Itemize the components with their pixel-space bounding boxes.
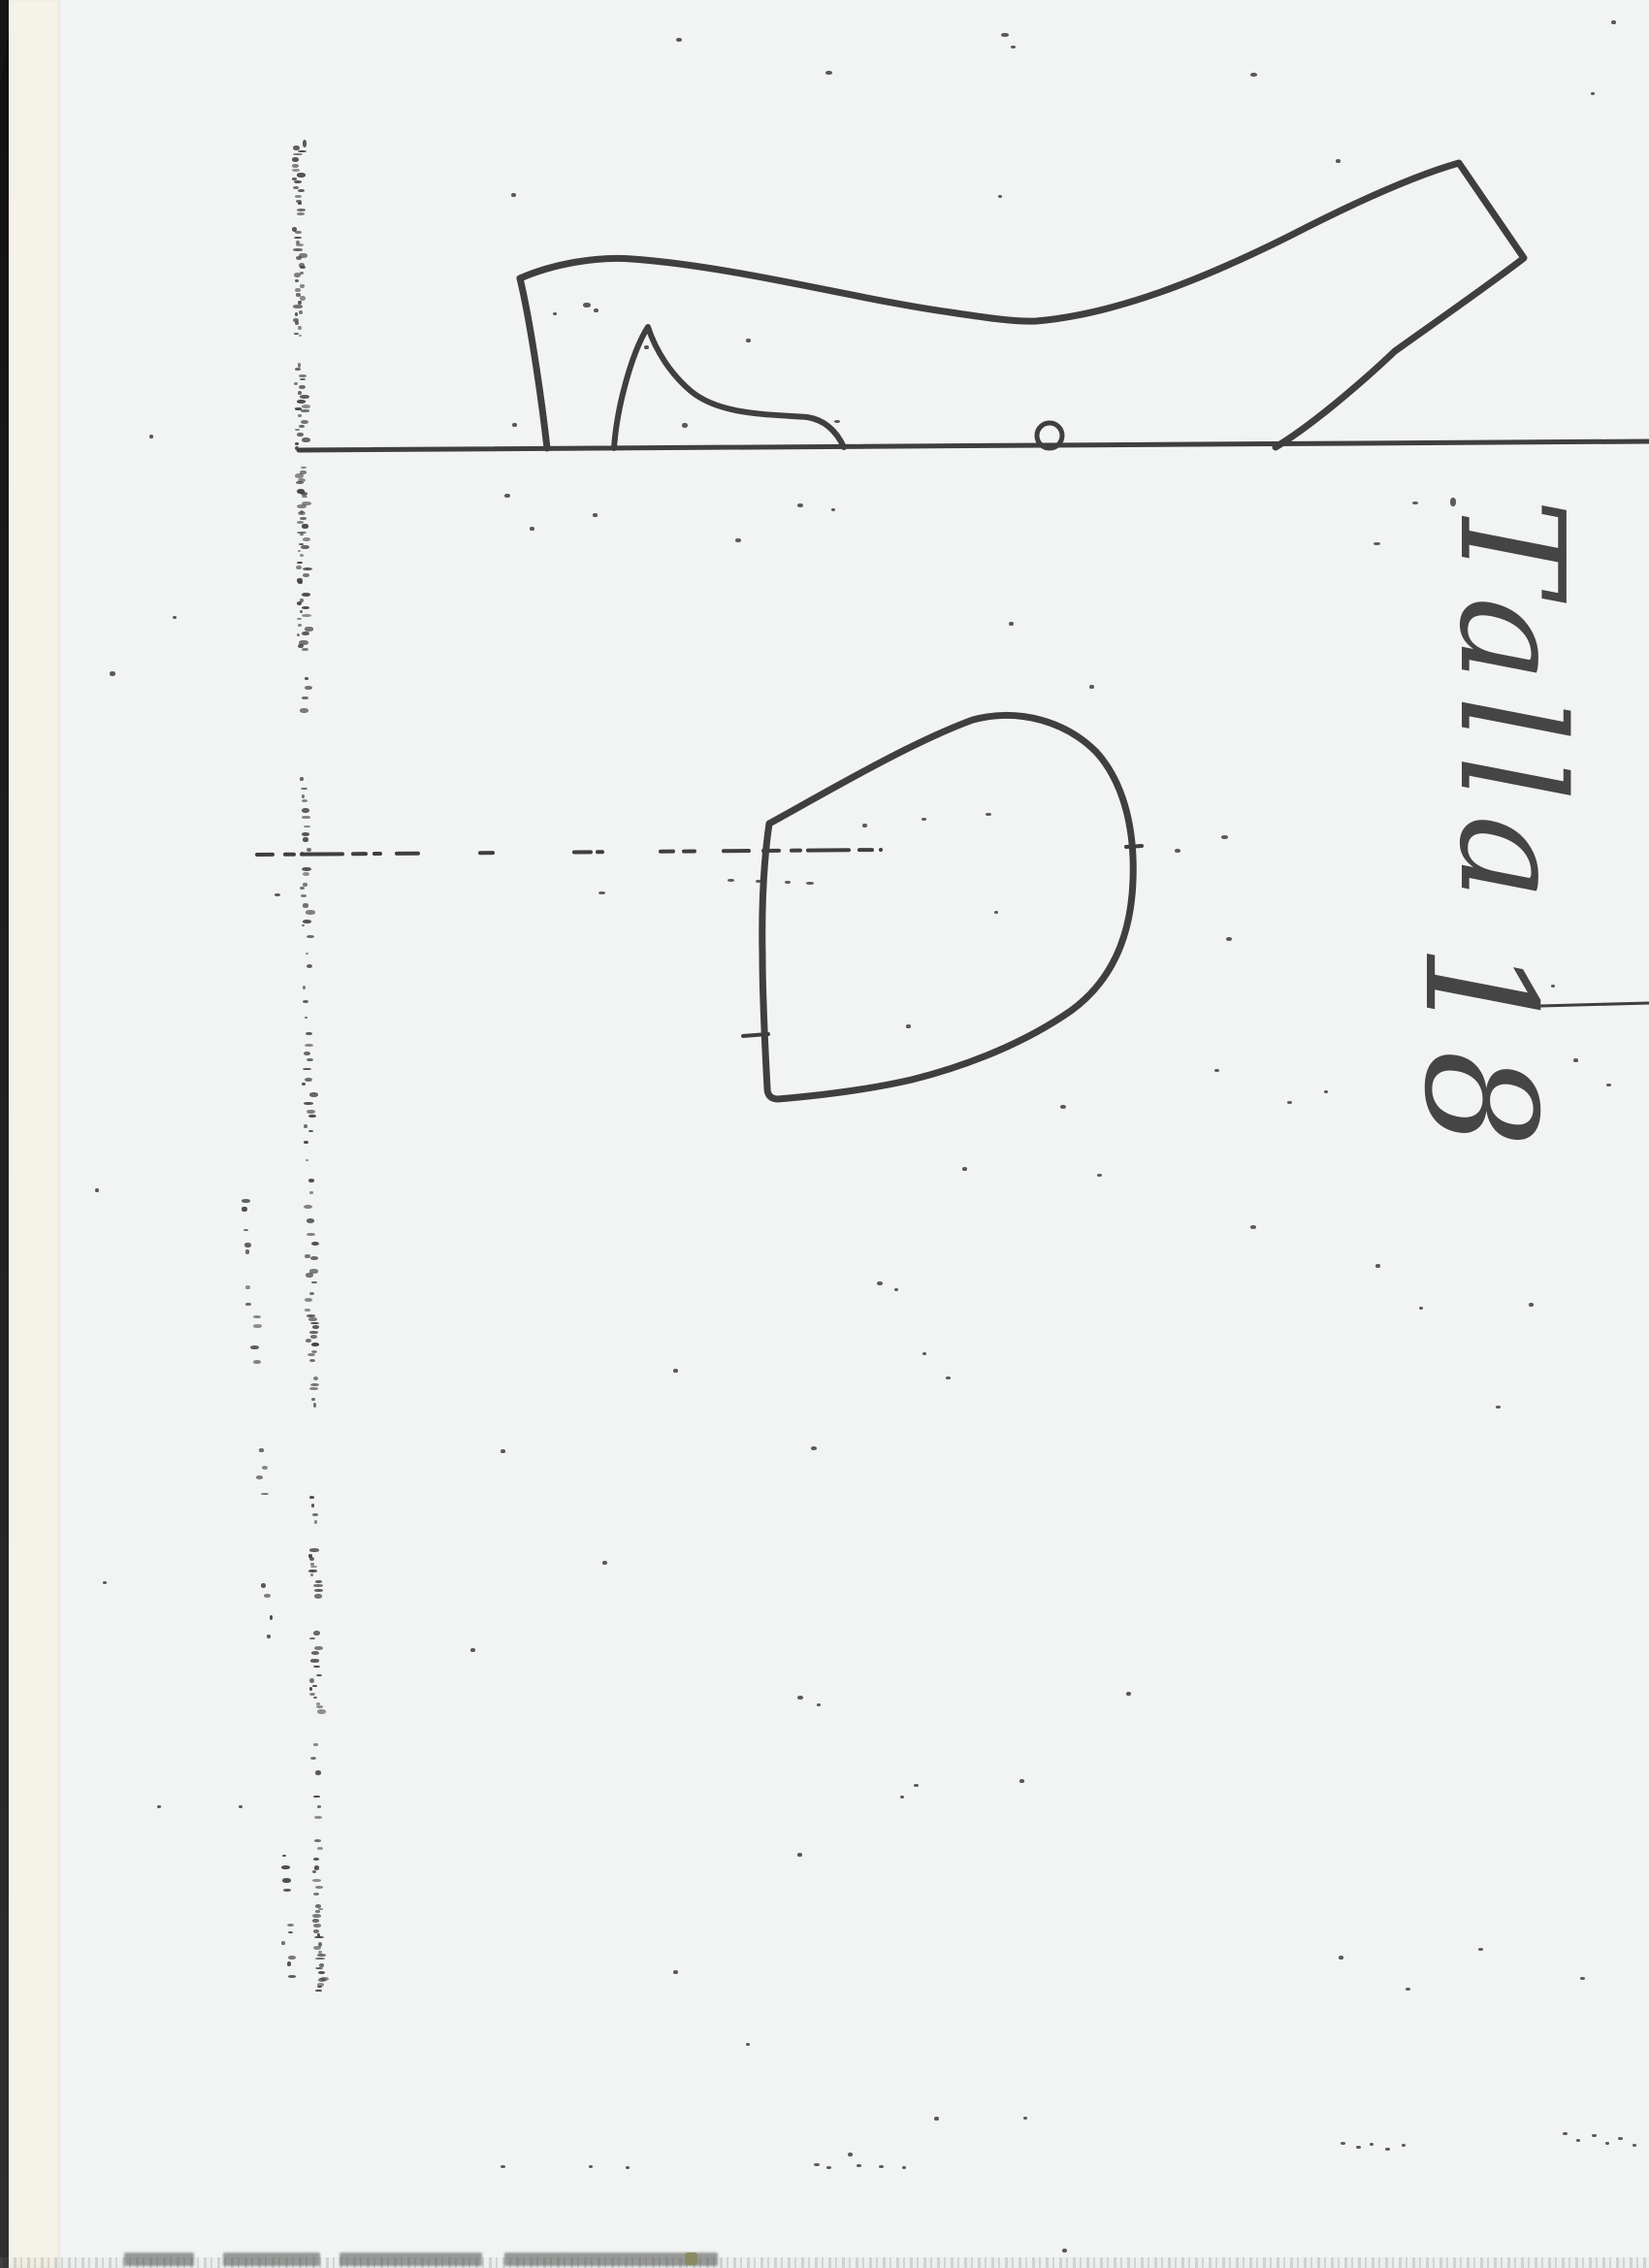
scan-speck bbox=[1011, 46, 1016, 49]
scan-speck bbox=[310, 1659, 319, 1662]
scan-speck bbox=[857, 2164, 861, 2167]
scan-speck bbox=[934, 2117, 939, 2121]
scan-speck bbox=[302, 405, 310, 408]
scan-speck bbox=[307, 1110, 315, 1114]
scan-speck bbox=[602, 1561, 607, 1565]
scan-speck bbox=[301, 894, 307, 896]
scan-speck bbox=[305, 686, 312, 690]
scan-speck bbox=[245, 1303, 251, 1306]
scan-speck bbox=[294, 273, 302, 276]
scan-speck bbox=[253, 1315, 261, 1318]
scan-speck bbox=[310, 1573, 313, 1575]
scan-speck bbox=[298, 414, 301, 417]
scan-speck bbox=[157, 1805, 161, 1808]
scan-speck bbox=[797, 503, 803, 507]
scan-speck bbox=[317, 1805, 321, 1808]
scan-speck bbox=[594, 308, 598, 312]
scan-speck bbox=[746, 2043, 750, 2046]
scan-speck bbox=[301, 788, 307, 790]
scan-speck bbox=[309, 1092, 318, 1097]
scan-speck bbox=[306, 1273, 313, 1278]
scan-speck bbox=[877, 1281, 883, 1285]
scan-speck bbox=[504, 494, 510, 498]
scan-speck bbox=[313, 1743, 317, 1746]
scan-speck bbox=[1529, 1303, 1534, 1307]
scan-speck bbox=[245, 1285, 249, 1289]
scan-speck bbox=[299, 425, 306, 427]
scan-speck bbox=[292, 164, 299, 167]
scan-speck bbox=[311, 1398, 315, 1401]
scan-speck bbox=[1336, 159, 1341, 163]
scan-speck bbox=[922, 1352, 926, 1355]
scan-speck bbox=[962, 1167, 967, 1171]
scan-speck bbox=[302, 1083, 306, 1085]
scan-speck bbox=[1551, 985, 1555, 988]
scan-speck bbox=[281, 1865, 289, 1869]
scan-speck bbox=[682, 423, 688, 428]
scan-speck bbox=[530, 527, 534, 531]
scan-speck bbox=[253, 1360, 261, 1364]
scan-speck bbox=[310, 1566, 317, 1568]
scan-speck bbox=[261, 1583, 266, 1588]
scan-speck bbox=[300, 517, 307, 519]
scan-speck bbox=[1419, 1307, 1423, 1310]
scan-speck bbox=[1126, 1692, 1131, 1696]
scan-speck bbox=[303, 537, 310, 541]
scan-speck bbox=[297, 521, 305, 524]
scan-speck bbox=[308, 1570, 317, 1572]
scan-speck bbox=[900, 1796, 904, 1798]
scan-speck bbox=[307, 1058, 313, 1061]
scan-speck bbox=[785, 881, 791, 884]
scan-speck bbox=[1406, 1988, 1410, 1991]
scan-speck bbox=[303, 573, 310, 577]
scan-speck bbox=[501, 1449, 505, 1453]
scan-speck bbox=[309, 1548, 318, 1551]
scan-speck bbox=[311, 1651, 320, 1655]
scan-speck bbox=[1592, 2134, 1597, 2137]
scan-speck bbox=[1023, 2117, 1027, 2120]
scan-speck bbox=[300, 777, 303, 781]
scan-speck bbox=[302, 794, 305, 798]
scan-speck bbox=[300, 610, 303, 613]
scan-speck bbox=[1496, 1406, 1501, 1409]
scan-speck bbox=[312, 1513, 318, 1515]
scan-speck bbox=[1611, 20, 1616, 24]
scan-speck bbox=[303, 920, 311, 923]
scan-speck bbox=[297, 400, 306, 403]
scan-speck bbox=[309, 1331, 318, 1334]
scan-speck bbox=[1214, 1069, 1219, 1072]
scan-speck bbox=[297, 212, 305, 215]
scan-speck bbox=[1356, 2146, 1361, 2149]
scan-speck bbox=[305, 677, 307, 680]
scan-speck bbox=[1341, 2142, 1345, 2145]
scan-speck bbox=[309, 1292, 314, 1295]
scan-speck bbox=[298, 301, 302, 305]
scan-speck bbox=[302, 816, 311, 818]
scan-speck bbox=[626, 2166, 630, 2169]
scan-speck bbox=[302, 593, 310, 597]
scan-speck bbox=[306, 953, 308, 956]
scan-speck bbox=[302, 632, 309, 635]
scan-speck bbox=[297, 173, 306, 177]
scan-speck bbox=[310, 1335, 317, 1339]
scan-speck bbox=[305, 1309, 310, 1311]
scan-speck bbox=[673, 1369, 678, 1373]
scan-speck bbox=[297, 209, 307, 211]
scan-speck bbox=[1633, 2144, 1636, 2147]
scan-speck bbox=[1175, 849, 1180, 853]
scan-speck bbox=[253, 1324, 262, 1328]
scan-speck bbox=[304, 1102, 313, 1104]
scan-speck bbox=[921, 818, 926, 821]
scan-speck bbox=[305, 1017, 307, 1019]
scan-speck bbox=[304, 1124, 307, 1128]
scan-speck bbox=[914, 1784, 919, 1787]
scan-speck bbox=[292, 178, 297, 179]
scan-speck bbox=[298, 581, 303, 585]
scan-speck bbox=[1089, 685, 1094, 689]
scan-speck bbox=[512, 423, 517, 427]
scan-speck bbox=[287, 1924, 294, 1927]
scan-speck bbox=[817, 1703, 821, 1706]
scan-speck bbox=[312, 1919, 319, 1923]
scan-speck bbox=[314, 1589, 323, 1591]
scan-speck bbox=[1250, 1225, 1256, 1229]
scan-speck bbox=[310, 1383, 319, 1386]
scan-speck bbox=[1060, 1105, 1066, 1109]
scan-speck bbox=[862, 824, 867, 827]
scan-speck bbox=[673, 1970, 678, 1974]
scan-speck bbox=[1226, 937, 1232, 941]
scan-speck bbox=[309, 1191, 313, 1193]
scan-speck bbox=[727, 879, 734, 882]
scan-speck bbox=[282, 1855, 286, 1857]
scan-speck bbox=[511, 193, 516, 197]
dashed-guide-line bbox=[257, 850, 881, 855]
scan-speck bbox=[303, 837, 307, 842]
scan-speck bbox=[797, 1853, 802, 1857]
scan-speck bbox=[302, 614, 311, 617]
scan-speck bbox=[811, 1446, 817, 1450]
scan-speck bbox=[946, 1377, 951, 1379]
scan-speck bbox=[470, 1648, 475, 1652]
bottom-band-dark-segment bbox=[124, 2252, 194, 2266]
scan-speck bbox=[313, 1631, 320, 1636]
scan-speck bbox=[825, 71, 832, 75]
scan-speck bbox=[261, 1493, 269, 1495]
bottom-band-dark-segment bbox=[223, 2252, 320, 2266]
scan-speck bbox=[879, 2165, 884, 2168]
scan-speck bbox=[296, 243, 304, 246]
scan-speck bbox=[303, 1068, 311, 1070]
scan-speck bbox=[293, 305, 302, 308]
scan-speck bbox=[317, 1847, 323, 1850]
scan-speck bbox=[308, 1317, 317, 1321]
scan-speck bbox=[318, 1971, 325, 1974]
scan-speck bbox=[95, 1188, 99, 1192]
scan-speck bbox=[305, 1044, 313, 1048]
scan-speck bbox=[1009, 622, 1014, 626]
handwritten-size-word: Talla bbox=[1439, 499, 1583, 914]
scan-speck bbox=[301, 852, 304, 855]
handwritten-size-number: 18 bbox=[1403, 943, 1556, 1157]
scan-speck bbox=[295, 321, 299, 325]
scan-speck bbox=[256, 1475, 263, 1479]
scan-speck bbox=[308, 1130, 313, 1132]
scan-speck bbox=[311, 1343, 319, 1346]
scan-speck bbox=[245, 1249, 249, 1253]
scan-speck bbox=[298, 150, 307, 152]
scan-speck bbox=[583, 303, 591, 308]
scan-speck bbox=[301, 409, 309, 411]
scan-speck bbox=[303, 903, 308, 907]
scan-speck bbox=[303, 1000, 308, 1003]
scan-speck bbox=[292, 157, 300, 162]
scan-speck bbox=[306, 910, 315, 914]
scan-speck bbox=[1591, 92, 1595, 95]
scan-speck bbox=[1618, 2137, 1623, 2140]
scan-speck bbox=[314, 1646, 323, 1650]
scan-speck bbox=[317, 1709, 327, 1714]
scan-speck bbox=[270, 1615, 273, 1620]
scan-speck bbox=[806, 882, 814, 885]
scan-speck bbox=[314, 1865, 319, 1869]
scan-speck bbox=[1478, 1948, 1483, 1951]
scan-speck bbox=[311, 1504, 314, 1507]
scan-speck bbox=[307, 848, 312, 852]
scan-speck bbox=[297, 433, 304, 437]
scan-speck bbox=[1221, 835, 1228, 839]
scan-speck bbox=[307, 1218, 315, 1223]
scan-speck bbox=[1001, 33, 1009, 37]
scan-speck bbox=[826, 2166, 831, 2169]
scan-speck bbox=[308, 1179, 314, 1183]
scan-speck bbox=[315, 1580, 322, 1582]
scan-speck bbox=[589, 2165, 593, 2168]
scan-speck bbox=[1019, 1779, 1024, 1783]
scan-speck bbox=[1606, 1084, 1611, 1086]
scan-speck bbox=[746, 339, 751, 342]
scan-speck bbox=[1450, 498, 1456, 506]
scan-speck bbox=[1580, 1977, 1585, 1980]
scan-speck bbox=[1576, 2139, 1580, 2142]
scan-speck bbox=[1097, 1174, 1102, 1177]
scan-speck bbox=[834, 420, 840, 423]
scan-speck bbox=[848, 2153, 853, 2156]
scan-speck bbox=[288, 1975, 296, 1977]
scan-speck bbox=[1563, 2132, 1568, 2135]
scan-speck bbox=[317, 1954, 326, 1957]
scan-speck bbox=[317, 1986, 322, 1988]
scan-speck bbox=[315, 1910, 320, 1912]
scan-speck bbox=[305, 1298, 312, 1302]
scan-speck bbox=[302, 437, 311, 442]
scan-speck bbox=[296, 566, 302, 570]
scan-speck bbox=[756, 880, 761, 883]
scan-speck bbox=[598, 891, 605, 894]
scan-speck bbox=[295, 195, 302, 198]
sock-side-profile-outline bbox=[520, 163, 1524, 448]
scan-speck bbox=[1402, 2144, 1406, 2147]
scan-speck bbox=[307, 1233, 314, 1237]
ground-baseline bbox=[299, 441, 1649, 450]
scan-speck bbox=[312, 1879, 321, 1882]
scan-speck bbox=[295, 231, 302, 234]
scan-speck bbox=[302, 832, 309, 836]
scan-speck bbox=[302, 808, 309, 813]
scan-speck bbox=[986, 813, 991, 816]
scan-speck bbox=[293, 248, 303, 251]
scan-speck bbox=[275, 893, 280, 896]
scan-speck bbox=[831, 508, 835, 511]
scan-speck bbox=[259, 1448, 264, 1451]
scan-speck bbox=[1062, 2249, 1067, 2252]
scan-speck bbox=[300, 284, 305, 288]
scan-speck bbox=[318, 1978, 326, 1981]
scan-speck bbox=[313, 1377, 318, 1380]
scan-speck bbox=[1573, 1058, 1578, 1062]
scan-speck bbox=[644, 345, 649, 349]
scan-speck bbox=[894, 1288, 898, 1291]
scan-speck bbox=[103, 1581, 107, 1584]
scan-speck bbox=[302, 524, 308, 529]
scan-speck bbox=[305, 627, 313, 631]
scan-speck bbox=[313, 1858, 319, 1861]
scan-speck bbox=[1605, 2142, 1609, 2145]
scan-speck bbox=[318, 1951, 322, 1954]
sole-right-tick bbox=[1126, 846, 1142, 847]
scan-speck bbox=[302, 924, 305, 926]
scan-speck bbox=[994, 911, 998, 914]
scan-speck bbox=[300, 395, 309, 399]
scan-speck bbox=[1385, 2148, 1390, 2151]
scan-speck bbox=[297, 562, 302, 564]
scan-speck bbox=[242, 1199, 250, 1203]
scan-speck bbox=[149, 435, 153, 438]
scan-speck bbox=[1250, 73, 1257, 77]
scan-speck bbox=[1339, 1956, 1343, 1960]
scan-speck bbox=[242, 1207, 246, 1212]
scan-speck bbox=[814, 2163, 820, 2166]
scan-speck bbox=[282, 1878, 291, 1883]
scan-speck bbox=[302, 697, 307, 698]
scan-speck bbox=[553, 312, 557, 315]
scan-speck bbox=[309, 1387, 319, 1390]
scan-speck bbox=[294, 237, 301, 239]
scan-speck bbox=[501, 2165, 505, 2168]
scan-speck bbox=[302, 648, 308, 651]
scan-speck bbox=[239, 1805, 242, 1808]
scan-speck bbox=[295, 312, 298, 316]
sole-left-tick bbox=[743, 1034, 768, 1036]
scan-speck bbox=[593, 513, 598, 517]
scan-speck bbox=[295, 473, 304, 478]
sole-piece-outline bbox=[762, 715, 1133, 1099]
scan-speck bbox=[303, 140, 307, 147]
scan-speck bbox=[315, 1770, 321, 1775]
scan-speck bbox=[110, 671, 115, 676]
scan-speck bbox=[298, 202, 302, 204]
scanned-pattern-page: Talla 18 bbox=[0, 0, 1649, 2268]
scan-speck bbox=[262, 1466, 269, 1470]
scan-speck bbox=[173, 616, 177, 619]
scan-speck bbox=[300, 708, 308, 713]
scan-speck bbox=[302, 606, 309, 609]
scan-speck bbox=[264, 1594, 271, 1598]
scan-speck bbox=[244, 1243, 251, 1247]
scan-speck bbox=[906, 1024, 911, 1028]
scan-speck bbox=[299, 374, 306, 376]
scan-speck bbox=[797, 1696, 803, 1700]
scan-speck bbox=[998, 195, 1002, 198]
scan-speck bbox=[1375, 1264, 1380, 1268]
scan-speck bbox=[1374, 542, 1380, 545]
olive-blob bbox=[685, 2252, 697, 2265]
scan-speck bbox=[314, 1594, 322, 1598]
scan-speck bbox=[305, 1254, 309, 1258]
scan-speck bbox=[902, 2166, 906, 2169]
scan-speck bbox=[735, 538, 741, 542]
scan-speck bbox=[1370, 2143, 1374, 2146]
scan-speck bbox=[676, 38, 682, 42]
scan-speck bbox=[1287, 1101, 1292, 1104]
scan-speck bbox=[301, 467, 307, 469]
scan-speck bbox=[313, 1796, 320, 1798]
scan-speck bbox=[1324, 1090, 1328, 1093]
scan-speck bbox=[316, 1705, 323, 1708]
scan-speck bbox=[295, 429, 300, 431]
bottom-band-dark-segment bbox=[339, 2252, 482, 2266]
scan-speck bbox=[292, 169, 301, 171]
scan-speck bbox=[1412, 502, 1418, 504]
